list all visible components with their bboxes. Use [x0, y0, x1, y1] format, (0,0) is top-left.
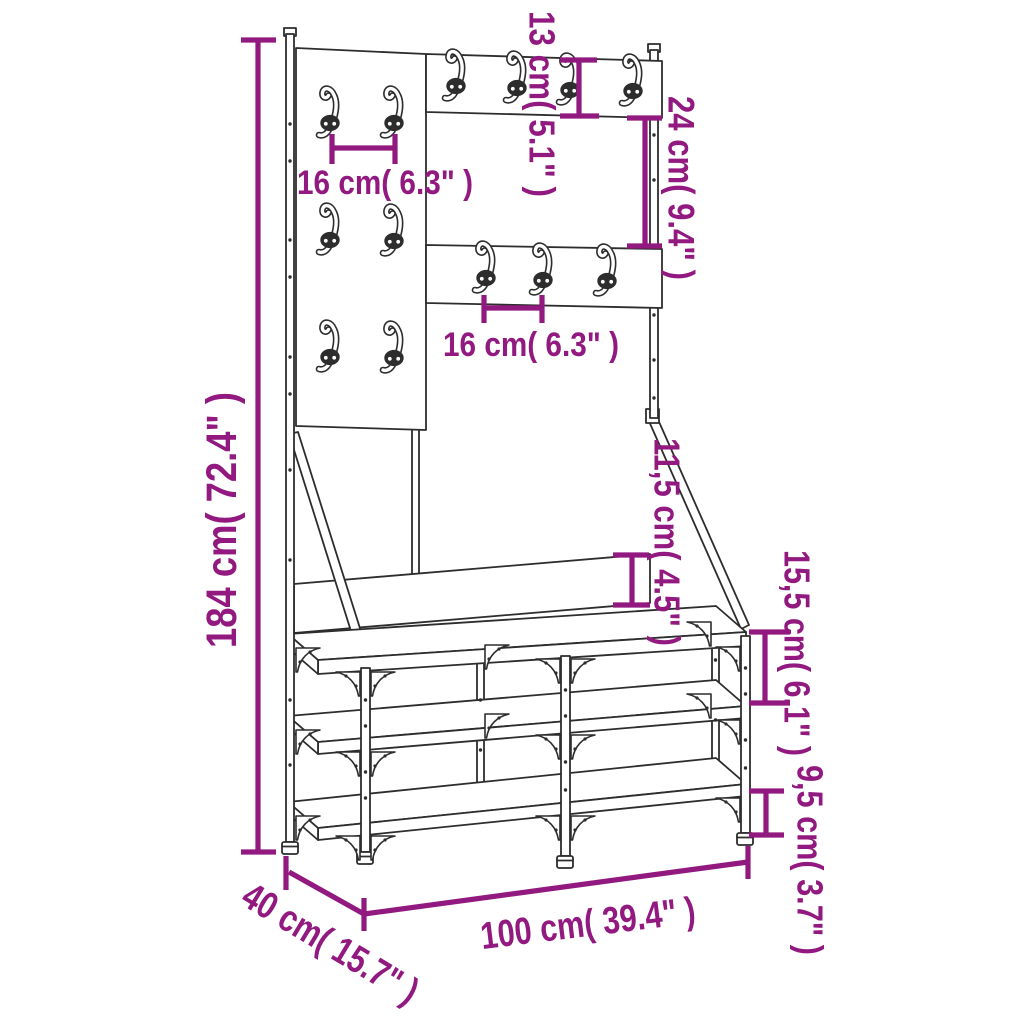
- hook-spacing-middle-label: 16 cm( 6.3" ): [443, 326, 619, 364]
- front-middle-leg: [561, 656, 570, 856]
- top-board-height-label: 13 cm( 5.1" ): [522, 11, 563, 197]
- seat-to-shelf-label: 15,5 cm( 6.1" ): [777, 550, 818, 756]
- total-height-label: 184 cm( 72.4" ): [198, 392, 246, 648]
- furniture-dimension-diagram: 184 cm( 72.4" ) 16 cm( 6.3" ) 13 cm( 5.1…: [0, 0, 1024, 1024]
- dimension-bottom-clearance: 9,5 cm( 3.7" ): [749, 765, 831, 955]
- left-rear-post: [286, 34, 294, 842]
- backrest-height-label: 11,5 cm( 4.5" ): [647, 438, 688, 646]
- bottom-clearance-label: 9,5 cm( 3.7" ): [790, 765, 831, 955]
- board-gap-label: 24 cm( 9.4" ): [661, 96, 702, 280]
- dimension-total-depth: 40 cm( 15.7" ): [234, 856, 425, 1013]
- foot: [557, 856, 573, 868]
- left-hook-panel: [296, 48, 426, 430]
- front-right-leg: [741, 636, 750, 833]
- diagram-canvas: 184 cm( 72.4" ) 16 cm( 6.3" ) 13 cm( 5.1…: [0, 0, 1024, 1024]
- front-left-leg: [361, 668, 370, 852]
- dimension-total-height: 184 cm( 72.4" ): [198, 40, 276, 852]
- dimension-total-width: 100 cm( 39.4" ): [364, 846, 748, 958]
- dimension-seat-to-shelf: 15,5 cm( 6.1" ): [749, 550, 818, 756]
- foot: [282, 842, 298, 854]
- total-width-label: 100 cm( 39.4" ): [478, 890, 698, 958]
- hook-spacing-left-label: 16 cm( 6.3" ): [297, 164, 473, 202]
- center-stile: [412, 428, 419, 575]
